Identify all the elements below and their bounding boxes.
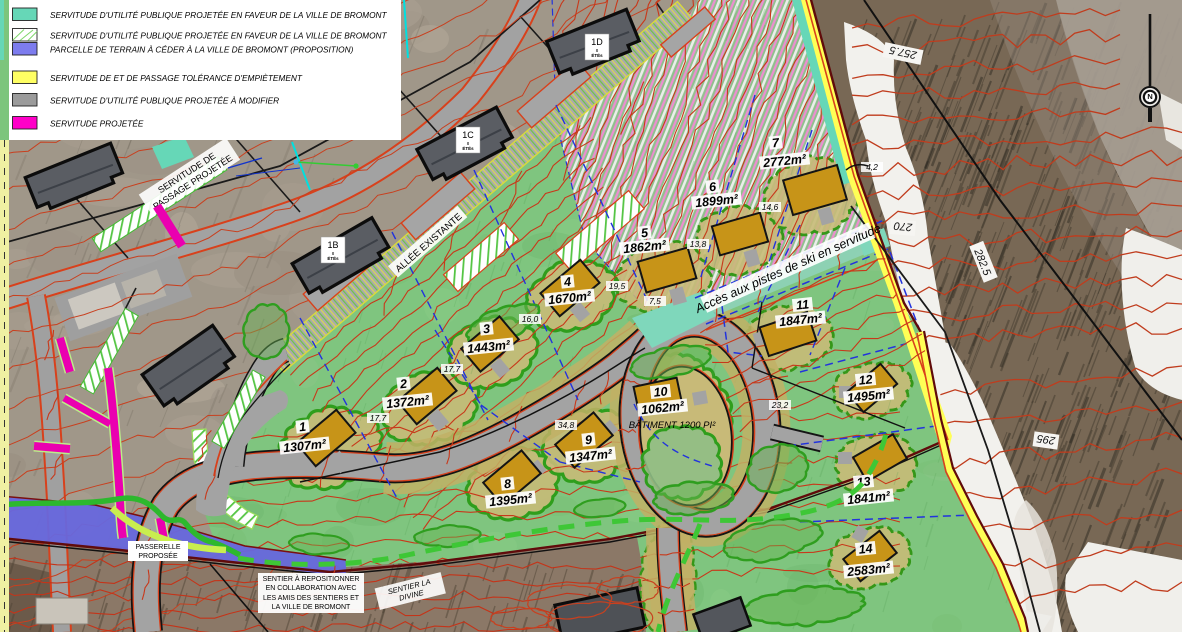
svg-text:SERVITUDE D'UTILITÉ PUBLIQUE P: SERVITUDE D'UTILITÉ PUBLIQUE PROJETÉE EN… <box>50 30 388 40</box>
svg-text:16,0: 16,0 <box>522 314 539 324</box>
svg-text:4,2: 4,2 <box>866 162 878 172</box>
svg-text:LA VILLE DE BROMONT: LA VILLE DE BROMONT <box>272 604 351 611</box>
svg-text:23,2: 23,2 <box>771 400 789 410</box>
svg-text:PASSERELLE: PASSERELLE <box>135 544 180 551</box>
svg-text:LES AMIS DES SENTIERS ET: LES AMIS DES SENTIERS ET <box>263 595 360 602</box>
svg-text:PARCELLE DE TERRAIN À CÉDER À: PARCELLE DE TERRAIN À CÉDER À LA VILLE D… <box>50 44 354 54</box>
svg-text:BÂTIMENT 1200 PI²: BÂTIMENT 1200 PI² <box>629 420 716 431</box>
svg-text:14,6: 14,6 <box>762 202 779 212</box>
svg-text:SERVITUDE D'UTILITÉ PUBLIQUE P: SERVITUDE D'UTILITÉ PUBLIQUE PROJETÉE À … <box>50 95 279 105</box>
svg-text:ÉTÉs: ÉTÉs <box>462 144 474 151</box>
svg-text:14: 14 <box>858 541 873 556</box>
svg-text:EN COLLABORATION AVEC: EN COLLABORATION AVEC <box>266 585 357 592</box>
svg-text:ÉTÉs: ÉTÉs <box>327 254 339 261</box>
svg-text:4: 4 <box>562 275 571 290</box>
svg-text:270: 270 <box>893 219 914 233</box>
svg-text:PROPOSÉE: PROPOSÉE <box>138 551 178 560</box>
svg-text:10: 10 <box>653 384 668 399</box>
svg-text:12: 12 <box>858 372 873 387</box>
svg-text:17,7: 17,7 <box>444 364 461 374</box>
svg-text:SERVITUDE PROJETÉE: SERVITUDE PROJETÉE <box>50 118 144 128</box>
svg-text:N: N <box>1147 92 1152 101</box>
svg-text:1B: 1B <box>327 240 338 250</box>
svg-text:SERVITUDE DE ET DE PASSAGE TOL: SERVITUDE DE ET DE PASSAGE TOLÉRANCE D'E… <box>50 73 303 83</box>
svg-text:13,8: 13,8 <box>690 239 707 249</box>
svg-text:19,5: 19,5 <box>609 281 626 291</box>
svg-text:SENTIER À REPOSITIONNER: SENTIER À REPOSITIONNER <box>263 574 360 583</box>
svg-text:34,8: 34,8 <box>558 420 575 430</box>
svg-text:2: 2 <box>398 377 407 392</box>
svg-text:17,7: 17,7 <box>370 413 387 423</box>
svg-text:11: 11 <box>795 297 809 312</box>
svg-text:1C: 1C <box>462 130 474 140</box>
svg-text:SERVITUDE D'UTILITÉ PUBLIQUE P: SERVITUDE D'UTILITÉ PUBLIQUE PROJETÉE EN… <box>50 10 388 20</box>
svg-text:7,5: 7,5 <box>649 296 661 306</box>
svg-text:1D: 1D <box>591 37 603 47</box>
svg-text:ÉTÉs: ÉTÉs <box>591 51 603 58</box>
